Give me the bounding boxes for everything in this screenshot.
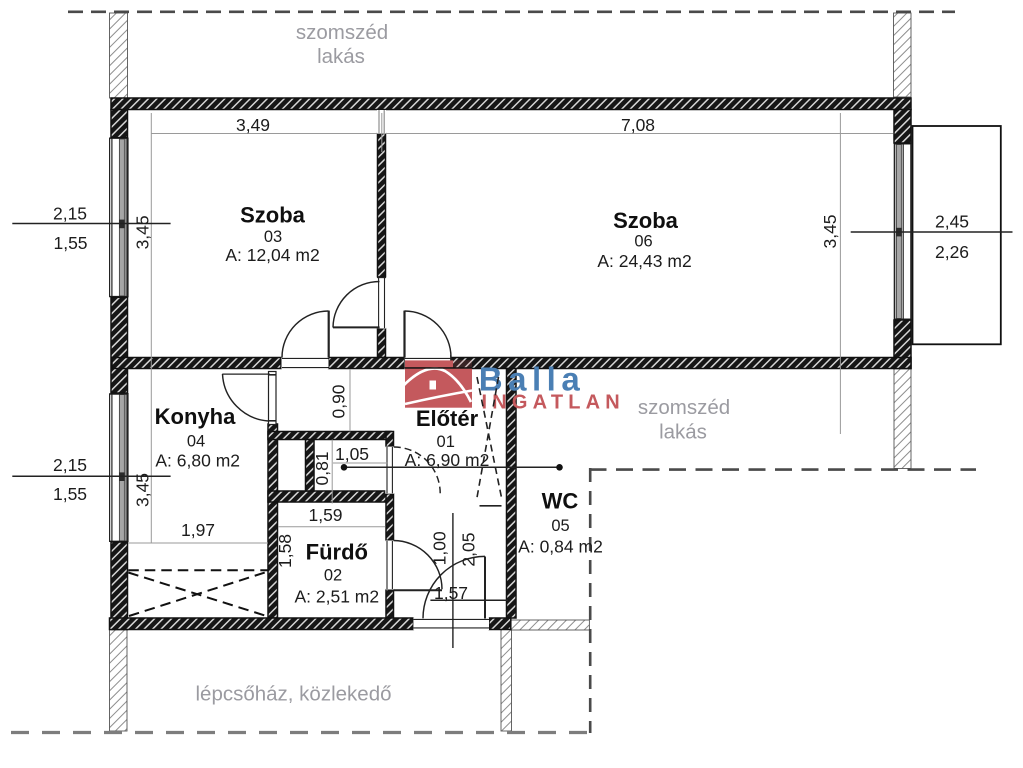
svg-text:1,58: 1,58 xyxy=(275,534,295,568)
svg-text:01: 01 xyxy=(437,433,455,451)
svg-text:1,57: 1,57 xyxy=(434,583,468,603)
svg-text:A: 0,84 m2: A: 0,84 m2 xyxy=(518,537,603,557)
svg-text:WC: WC xyxy=(542,489,579,514)
svg-text:1,55: 1,55 xyxy=(53,233,87,253)
svg-text:A: 6,90 m2: A: 6,90 m2 xyxy=(405,450,490,470)
svg-text:Konyha: Konyha xyxy=(155,404,236,429)
svg-text:2,26: 2,26 xyxy=(935,242,969,262)
svg-text:INGATLAN: INGATLAN xyxy=(482,391,625,413)
svg-text:06: 06 xyxy=(634,233,652,251)
svg-text:1,55: 1,55 xyxy=(53,484,87,504)
svg-text:Fürdő: Fürdő xyxy=(306,539,368,564)
svg-text:szomszéd: szomszéd xyxy=(638,396,730,419)
svg-text:0,81: 0,81 xyxy=(312,451,332,485)
svg-text:1,97: 1,97 xyxy=(181,520,215,540)
svg-text:lakás: lakás xyxy=(659,420,707,443)
svg-text:Előtér: Előtér xyxy=(416,406,479,431)
svg-text:03: 03 xyxy=(264,228,282,246)
svg-text:A: 2,51 m2: A: 2,51 m2 xyxy=(294,587,379,607)
svg-text:2,05: 2,05 xyxy=(459,533,479,567)
svg-text:0,90: 0,90 xyxy=(329,384,349,418)
svg-text:3,45: 3,45 xyxy=(133,215,153,249)
svg-text:1,00: 1,00 xyxy=(430,531,450,565)
svg-text:2,15: 2,15 xyxy=(53,455,87,475)
svg-text:3,45: 3,45 xyxy=(820,214,840,248)
svg-text:3,45: 3,45 xyxy=(133,473,153,507)
svg-text:02: 02 xyxy=(324,567,342,585)
svg-text:2,15: 2,15 xyxy=(53,203,87,223)
svg-text:lépcsőház, közlekedő: lépcsőház, közlekedő xyxy=(195,683,391,706)
svg-text:04: 04 xyxy=(187,432,205,450)
svg-text:7,08: 7,08 xyxy=(621,115,655,135)
svg-text:A: 24,43 m2: A: 24,43 m2 xyxy=(597,251,691,271)
svg-text:05: 05 xyxy=(551,517,569,535)
svg-text:A: 6,80 m2: A: 6,80 m2 xyxy=(155,450,240,470)
svg-text:A: 12,04 m2: A: 12,04 m2 xyxy=(225,245,319,265)
svg-text:2,45: 2,45 xyxy=(935,212,969,232)
svg-text:lakás: lakás xyxy=(317,45,365,68)
svg-text:1,59: 1,59 xyxy=(308,505,342,525)
svg-text:1,05: 1,05 xyxy=(335,444,369,464)
svg-text:3,49: 3,49 xyxy=(236,115,270,135)
svg-text:szomszéd: szomszéd xyxy=(296,21,388,44)
svg-text:Szoba: Szoba xyxy=(613,208,679,233)
svg-text:Szoba: Szoba xyxy=(240,203,306,228)
